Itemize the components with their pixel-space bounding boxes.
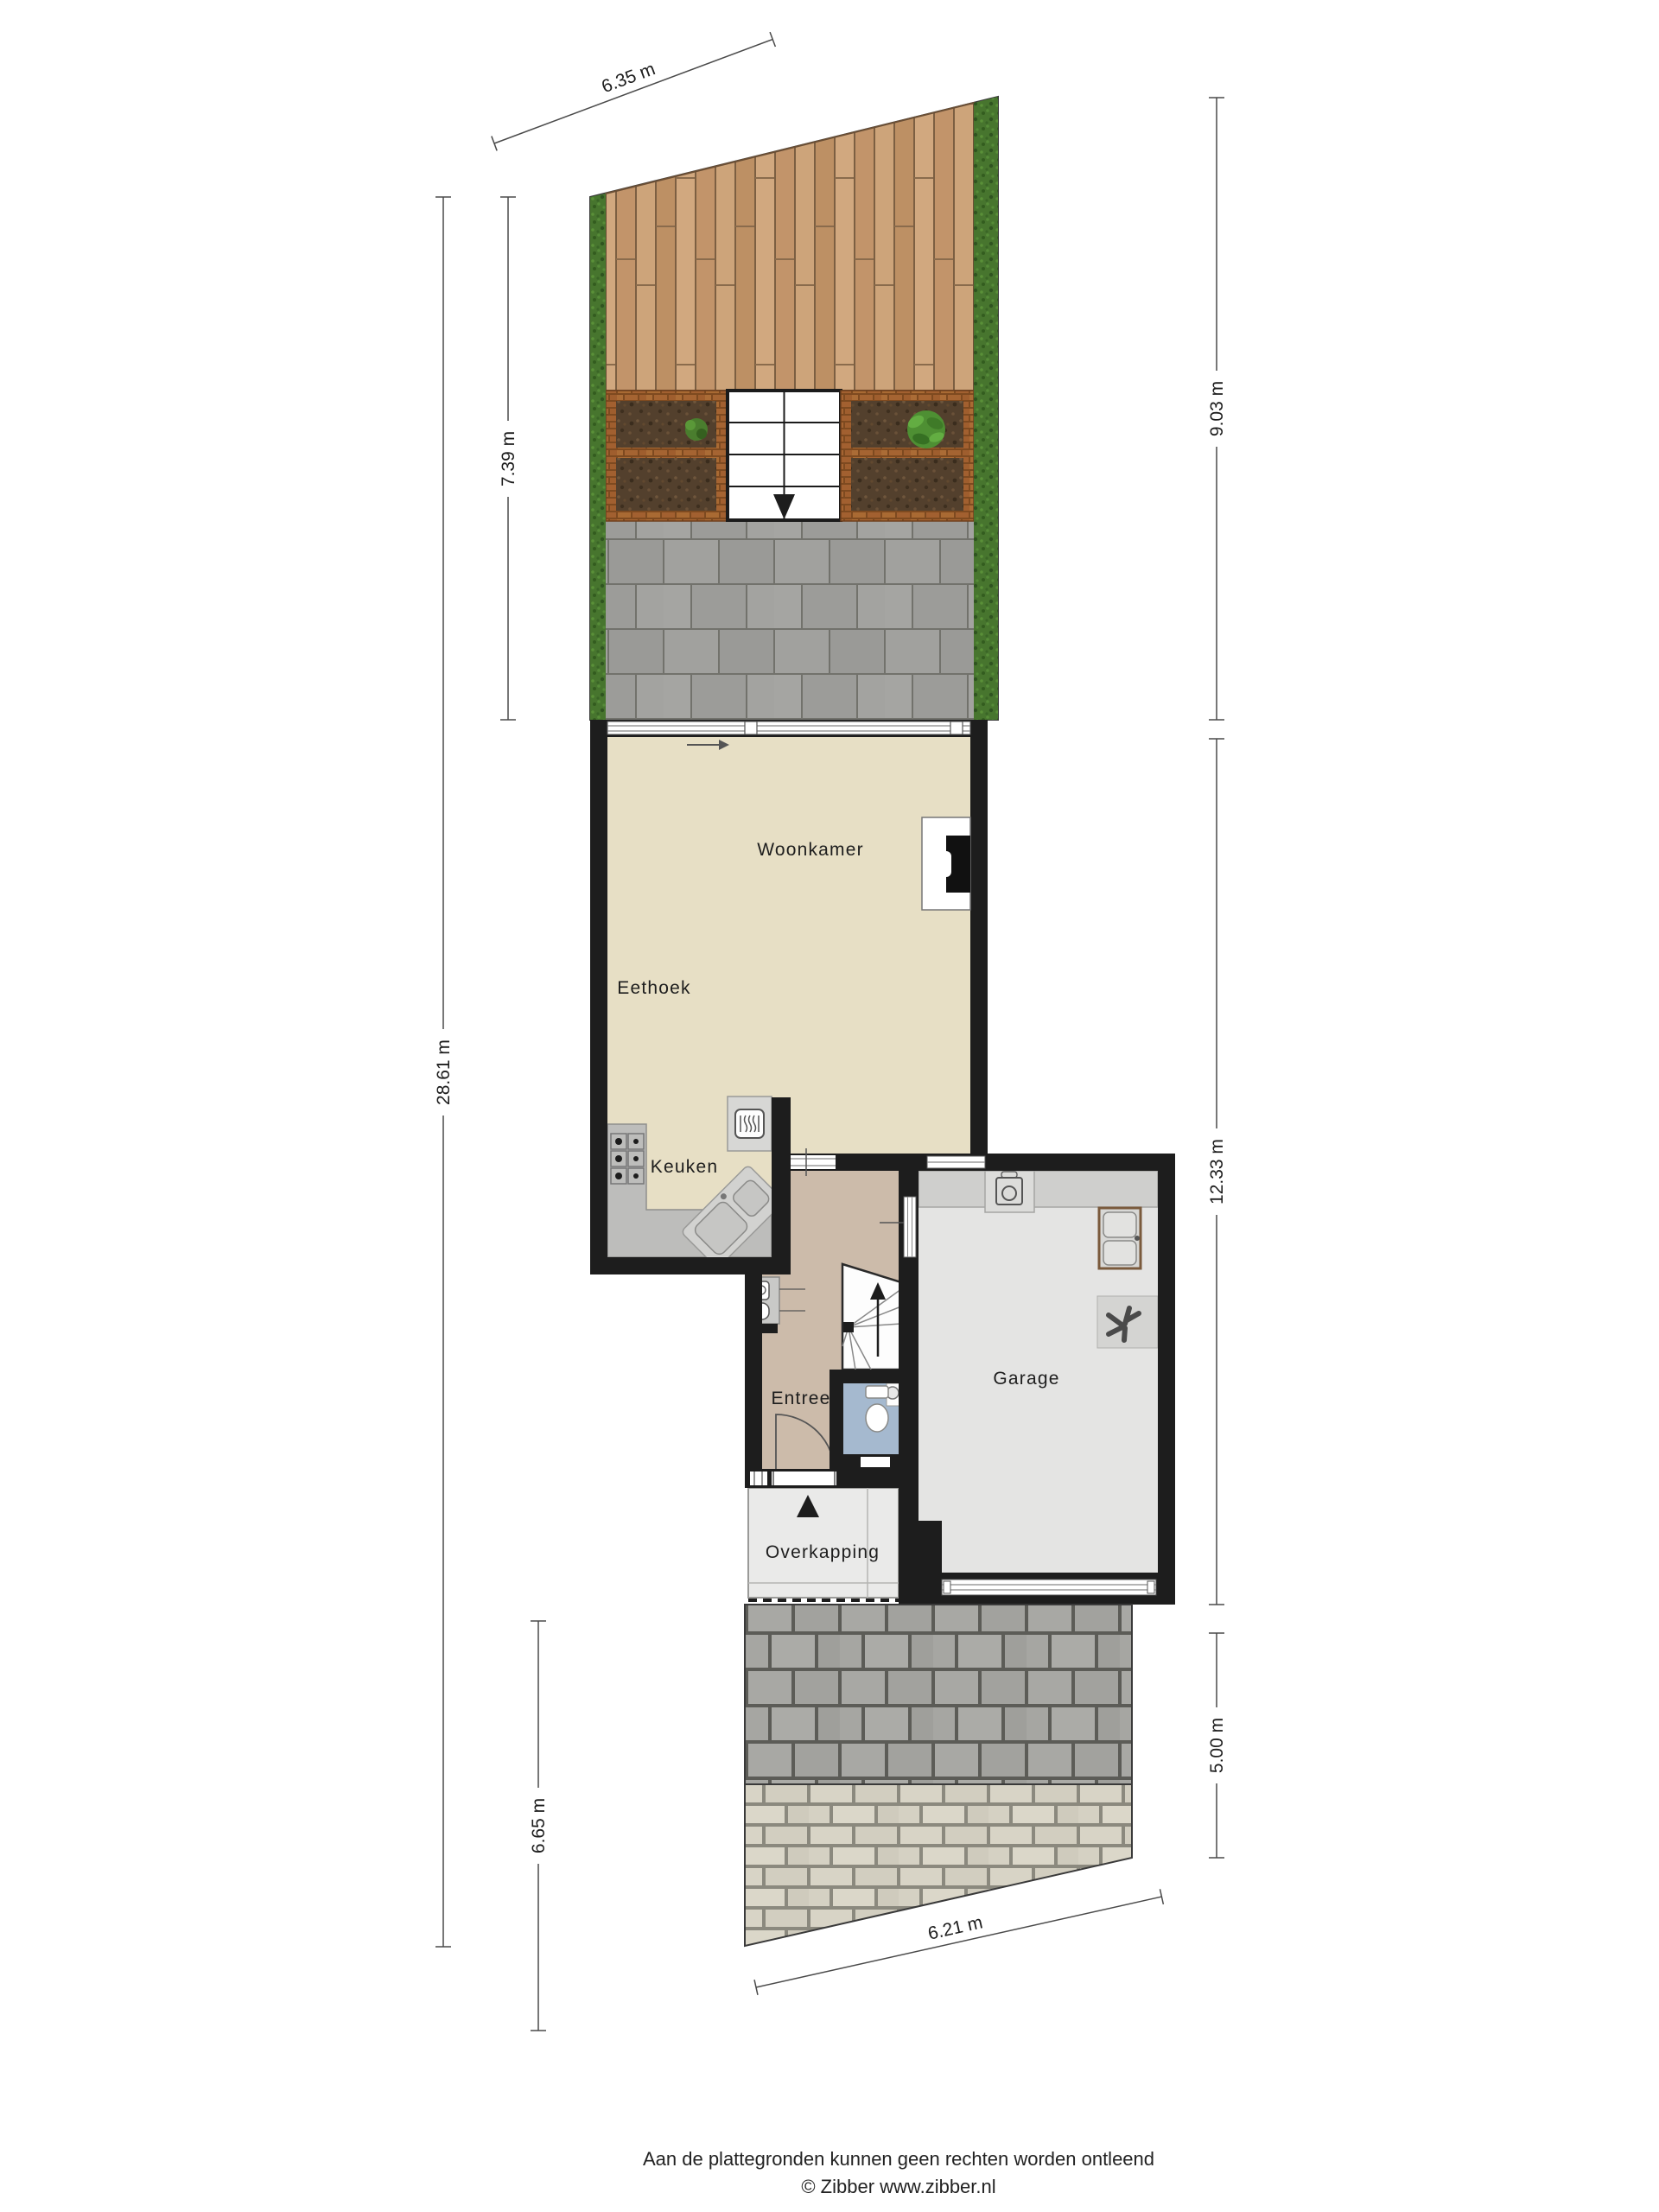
svg-text:28.61 m: 28.61 m xyxy=(434,1039,454,1105)
svg-text:12.33 m: 12.33 m xyxy=(1207,1139,1227,1205)
svg-text:6.65 m: 6.65 m xyxy=(529,1798,549,1853)
planter-left xyxy=(606,391,727,521)
driveway xyxy=(745,1605,1132,1946)
tv-unit xyxy=(922,817,970,910)
label-entree: Entree xyxy=(771,1389,830,1408)
garden xyxy=(590,97,998,720)
garage-interior-window xyxy=(927,1156,985,1168)
bush-icon xyxy=(685,418,708,441)
garden-stairs xyxy=(728,391,841,520)
dim-garden-width-top: 6.35 m xyxy=(486,16,775,150)
garden-patio xyxy=(590,521,998,720)
staircase xyxy=(842,1264,901,1370)
svg-text:7.39 m: 7.39 m xyxy=(499,431,518,486)
dim-driveway-depth-right: 5.00 m xyxy=(1205,1633,1229,1858)
oven-cabinet xyxy=(728,1096,772,1151)
hedge-left xyxy=(590,194,606,720)
svg-text:9.03 m: 9.03 m xyxy=(1207,381,1227,436)
driveway-pavers xyxy=(745,1605,1132,1784)
svg-text:6.35 m: 6.35 m xyxy=(599,59,658,97)
oven-icon xyxy=(735,1109,764,1138)
garage-sink-icon xyxy=(1099,1208,1141,1268)
dim-garden-depth-left: 7.39 m xyxy=(496,197,520,720)
dim-driveway-depth-left: 6.65 m xyxy=(526,1621,550,2031)
label-eethoek: Eethoek xyxy=(617,978,690,998)
floorplan-drawing: Woonkamer Eethoek Keuken Entree Garage O… xyxy=(0,0,1659,2212)
dim-plot-depth-left: 28.61 m xyxy=(431,197,455,1947)
garage-door xyxy=(942,1580,1156,1595)
garage-counter xyxy=(918,1171,1158,1207)
front-door-opening xyxy=(750,1471,836,1485)
footer-disclaimer: Aan de plattegronden kunnen geen rechten… xyxy=(643,2148,1154,2170)
label-garage: Garage xyxy=(993,1369,1059,1389)
label-overkapping: Overkapping xyxy=(766,1542,880,1562)
hedge-right xyxy=(974,97,998,720)
ventilation-unit xyxy=(1097,1296,1158,1348)
footer: Aan de plattegronden kunnen geen rechten… xyxy=(643,2148,1154,2197)
footer-credit: © Zibber www.zibber.nl xyxy=(801,2176,995,2197)
label-keuken: Keuken xyxy=(651,1157,718,1177)
sliding-door-glazing xyxy=(607,721,970,734)
dim-house-depth-right: 12.33 m xyxy=(1205,739,1229,1605)
garden-deck xyxy=(606,103,974,391)
svg-text:6.21 m: 6.21 m xyxy=(926,1912,985,1943)
toilet-icon xyxy=(866,1386,888,1432)
toilet-door-opening xyxy=(861,1457,890,1467)
label-woonkamer: Woonkamer xyxy=(757,840,864,860)
planter-right xyxy=(841,391,974,521)
floorplan-page: Woonkamer Eethoek Keuken Entree Garage O… xyxy=(0,0,1659,2212)
svg-text:5.00 m: 5.00 m xyxy=(1207,1718,1227,1773)
dim-garden-depth-right: 9.03 m xyxy=(1205,98,1229,720)
